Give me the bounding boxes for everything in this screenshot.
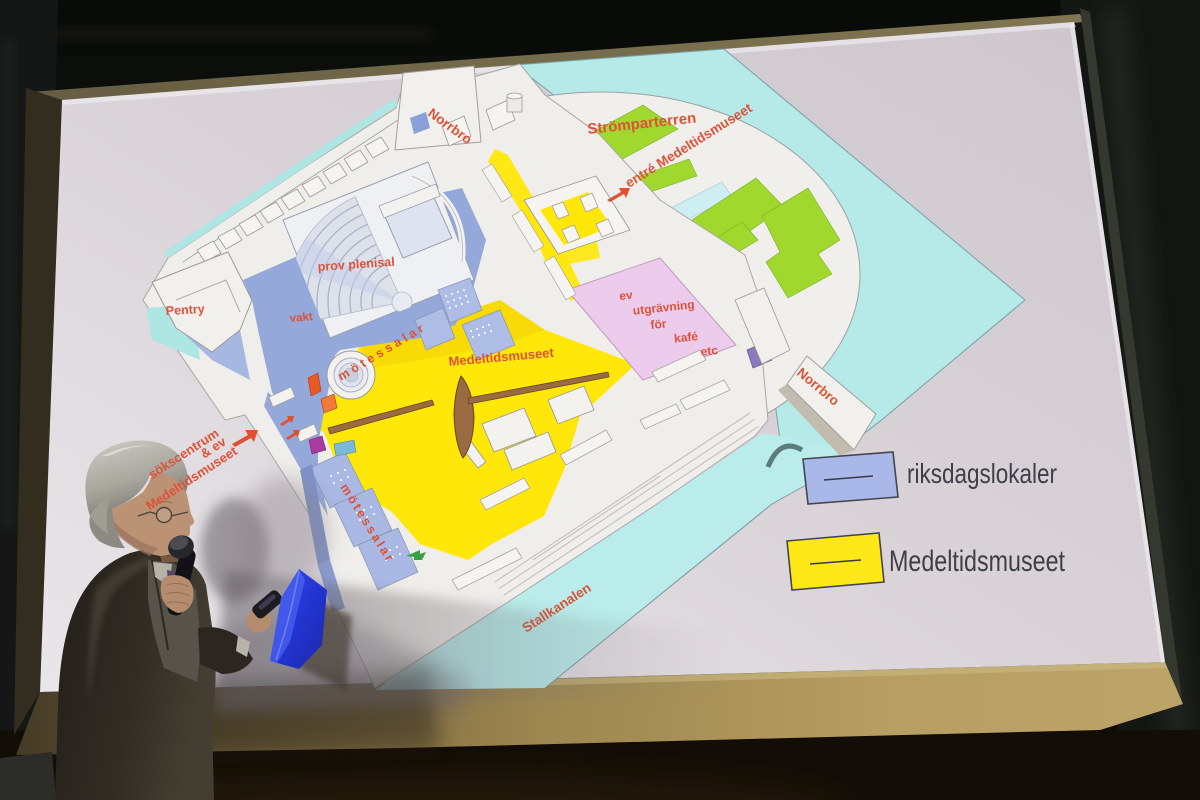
svg-text:vakt: vakt: [289, 311, 313, 325]
svg-text:ev: ev: [619, 288, 634, 303]
svg-text:Medeltidsmuseet: Medeltidsmuseet: [889, 545, 1066, 578]
svg-text:kafé: kafé: [673, 329, 699, 345]
svg-text:Pentry: Pentry: [165, 302, 205, 318]
svg-text:riksdagslokaler: riksdagslokaler: [907, 458, 1057, 489]
svg-text:för: för: [650, 316, 668, 332]
svg-text:etc: etc: [700, 343, 719, 359]
